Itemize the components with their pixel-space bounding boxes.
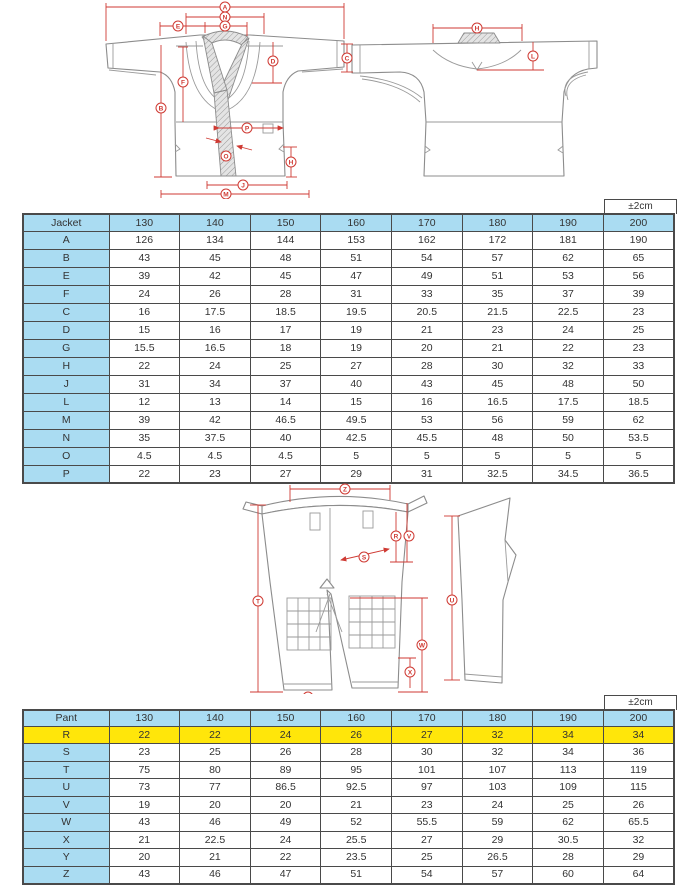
value-cell: 32	[603, 831, 674, 849]
value-cell: 23	[180, 465, 251, 483]
value-cell: 23	[392, 796, 463, 814]
dimension-marker: J	[238, 180, 248, 190]
value-cell: 31	[321, 285, 392, 303]
header-row: Jacket130140150160170180190200	[23, 214, 674, 231]
measure-label-cell: X	[23, 831, 109, 849]
value-cell: 48	[462, 429, 533, 447]
value-cell: 27	[392, 726, 463, 744]
value-cell: 42.5	[321, 429, 392, 447]
value-cell: 107	[462, 761, 533, 779]
size-column-header: 200	[603, 710, 674, 726]
table-title-cell: Pant	[23, 710, 109, 726]
table-row: R2222242627323434	[23, 726, 674, 744]
value-cell: 39	[109, 267, 180, 285]
table-row: S2325262830323436	[23, 744, 674, 762]
header-row: Pant130140150160170180190200	[23, 710, 674, 726]
value-cell: 60	[533, 866, 604, 884]
value-cell: 47	[321, 267, 392, 285]
value-cell: 19	[321, 321, 392, 339]
dimension-marker: Z	[340, 484, 350, 494]
measure-label-cell: B	[23, 249, 109, 267]
value-cell: 77	[180, 779, 251, 797]
dimension-marker: E	[173, 21, 183, 31]
table-row: O4.54.54.555555	[23, 447, 674, 465]
value-cell: 57	[462, 249, 533, 267]
value-cell: 24	[533, 321, 604, 339]
value-cell: 190	[603, 231, 674, 249]
measure-label-cell: T	[23, 761, 109, 779]
jacket-size-table: Jacket130140150160170180190200A126134144…	[22, 213, 675, 484]
table-row: C1617.518.519.520.521.522.523	[23, 303, 674, 321]
table-row: M394246.549.553565962	[23, 411, 674, 429]
value-cell: 49	[250, 814, 321, 832]
svg-text:T: T	[256, 598, 260, 605]
value-cell: 49.5	[321, 411, 392, 429]
dimension-marker: P	[242, 123, 252, 133]
value-cell: 40	[321, 375, 392, 393]
dimension-marker: C	[342, 53, 352, 63]
size-column-header: 190	[533, 710, 604, 726]
svg-text:O: O	[223, 153, 228, 160]
value-cell: 21	[180, 849, 251, 867]
table-row: W4346495255.5596265.5	[23, 814, 674, 832]
value-cell: 56	[603, 267, 674, 285]
table-row: T75808995101107113119	[23, 761, 674, 779]
dimension-marker: R	[391, 531, 401, 541]
value-cell: 16	[180, 321, 251, 339]
value-cell: 65.5	[603, 814, 674, 832]
size-column-header: 150	[250, 214, 321, 231]
value-cell: 21	[321, 796, 392, 814]
value-cell: 95	[321, 761, 392, 779]
value-cell: 23	[603, 303, 674, 321]
value-cell: 37	[533, 285, 604, 303]
value-cell: 34	[533, 744, 604, 762]
value-cell: 26	[603, 796, 674, 814]
size-column-header: 160	[321, 710, 392, 726]
measure-label-cell: C	[23, 303, 109, 321]
value-cell: 45	[180, 249, 251, 267]
value-cell: 21.5	[462, 303, 533, 321]
value-cell: 36.5	[603, 465, 674, 483]
value-cell: 37	[250, 375, 321, 393]
dimension-marker: H	[472, 23, 482, 33]
value-cell: 50	[603, 375, 674, 393]
value-cell: 24	[250, 726, 321, 744]
value-cell: 25.5	[321, 831, 392, 849]
value-cell: 92.5	[321, 779, 392, 797]
value-cell: 52	[321, 814, 392, 832]
dimension-marker: M	[221, 189, 231, 199]
value-cell: 32	[533, 357, 604, 375]
value-cell: 32.5	[462, 465, 533, 483]
value-cell: 23	[109, 744, 180, 762]
pants-diagram: Z R V S T W X Y	[0, 482, 679, 694]
value-cell: 53.5	[603, 429, 674, 447]
value-cell: 22	[109, 726, 180, 744]
value-cell: 48	[250, 249, 321, 267]
svg-text:R: R	[394, 533, 399, 540]
svg-text:B: B	[159, 105, 164, 112]
table-row: A126134144153162172181190	[23, 231, 674, 249]
value-cell: 35	[462, 285, 533, 303]
value-cell: 45.5	[392, 429, 463, 447]
table-row: L121314151616.517.518.5	[23, 393, 674, 411]
pants-front-drawing: Z R V S T W X Y	[243, 484, 428, 694]
pant-size-table: Pant130140150160170180190200R22222426273…	[22, 709, 675, 885]
value-cell: 16	[109, 303, 180, 321]
dimension-marker: S	[359, 552, 369, 562]
value-cell: 39	[109, 411, 180, 429]
table-row: J3134374043454850	[23, 375, 674, 393]
table-row: B4345485154576265	[23, 249, 674, 267]
svg-text:U: U	[450, 597, 455, 604]
svg-text:W: W	[419, 642, 426, 649]
value-cell: 109	[533, 779, 604, 797]
value-cell: 26.5	[462, 849, 533, 867]
value-cell: 5	[321, 447, 392, 465]
value-cell: 39	[603, 285, 674, 303]
value-cell: 29	[603, 849, 674, 867]
value-cell: 22.5	[180, 831, 251, 849]
value-cell: 34	[533, 726, 604, 744]
value-cell: 62	[603, 411, 674, 429]
size-column-header: 160	[321, 214, 392, 231]
value-cell: 33	[392, 285, 463, 303]
value-cell: 15.5	[109, 339, 180, 357]
value-cell: 28	[321, 744, 392, 762]
value-cell: 21	[109, 831, 180, 849]
svg-text:H: H	[475, 25, 480, 32]
value-cell: 65	[603, 249, 674, 267]
dimension-marker: F	[178, 77, 188, 87]
value-cell: 5	[603, 447, 674, 465]
size-column-header: 170	[392, 710, 463, 726]
table-row: N3537.54042.545.5485053.5	[23, 429, 674, 447]
dimension-marker: L	[528, 51, 538, 61]
svg-text:M: M	[223, 191, 228, 198]
value-cell: 54	[392, 249, 463, 267]
value-cell: 31	[109, 375, 180, 393]
value-cell: 172	[462, 231, 533, 249]
measure-label-cell: E	[23, 267, 109, 285]
dimension-marker: U	[447, 595, 457, 605]
value-cell: 26	[321, 726, 392, 744]
svg-text:P: P	[245, 125, 250, 132]
value-cell: 43	[109, 249, 180, 267]
value-cell: 53	[392, 411, 463, 429]
size-column-header: 170	[392, 214, 463, 231]
measure-label-cell: G	[23, 339, 109, 357]
size-column-header: 180	[462, 214, 533, 231]
value-cell: 53	[533, 267, 604, 285]
tolerance-label: ±2cm	[604, 199, 677, 214]
value-cell: 64	[603, 866, 674, 884]
value-cell: 54	[392, 866, 463, 884]
value-cell: 26	[180, 285, 251, 303]
table-row: X2122.52425.5272930.532	[23, 831, 674, 849]
value-cell: 80	[180, 761, 251, 779]
measure-label-cell: Y	[23, 849, 109, 867]
value-cell: 126	[109, 231, 180, 249]
size-column-header: 140	[180, 710, 251, 726]
table-title-cell: Jacket	[23, 214, 109, 231]
dimension-marker: H	[286, 157, 296, 167]
value-cell: 27	[250, 465, 321, 483]
value-cell: 35	[109, 429, 180, 447]
value-cell: 40	[250, 429, 321, 447]
value-cell: 119	[603, 761, 674, 779]
value-cell: 22	[250, 849, 321, 867]
jacket-diagram: A N E G D F B P O H J M	[0, 0, 679, 199]
size-column-header: 150	[250, 710, 321, 726]
value-cell: 22.5	[533, 303, 604, 321]
value-cell: 27	[321, 357, 392, 375]
value-cell: 36	[603, 744, 674, 762]
value-cell: 51	[321, 249, 392, 267]
value-cell: 32	[462, 726, 533, 744]
value-cell: 162	[392, 231, 463, 249]
value-cell: 29	[321, 465, 392, 483]
value-cell: 97	[392, 779, 463, 797]
value-cell: 22	[533, 339, 604, 357]
value-cell: 24	[180, 357, 251, 375]
value-cell: 34.5	[533, 465, 604, 483]
value-cell: 25	[533, 796, 604, 814]
value-cell: 73	[109, 779, 180, 797]
value-cell: 153	[321, 231, 392, 249]
table-row: D1516171921232425	[23, 321, 674, 339]
size-chart-page: A N E G D F B P O H J M	[0, 0, 679, 894]
measure-label-cell: S	[23, 744, 109, 762]
value-cell: 49	[392, 267, 463, 285]
value-cell: 62	[533, 249, 604, 267]
table-row: F2426283133353739	[23, 285, 674, 303]
table-row: Y20212223.52526.52829	[23, 849, 674, 867]
value-cell: 19	[321, 339, 392, 357]
value-cell: 22	[109, 465, 180, 483]
value-cell: 113	[533, 761, 604, 779]
value-cell: 134	[180, 231, 251, 249]
size-column-header: 200	[603, 214, 674, 231]
value-cell: 46.5	[250, 411, 321, 429]
value-cell: 46	[180, 814, 251, 832]
value-cell: 5	[462, 447, 533, 465]
table-row: H2224252728303233	[23, 357, 674, 375]
measure-label-cell: L	[23, 393, 109, 411]
dimension-marker: B	[156, 103, 166, 113]
value-cell: 25	[250, 357, 321, 375]
table-row: V1920202123242526	[23, 796, 674, 814]
value-cell: 30	[462, 357, 533, 375]
value-cell: 31	[392, 465, 463, 483]
svg-text:F: F	[181, 79, 185, 86]
value-cell: 101	[392, 761, 463, 779]
value-cell: 46	[180, 866, 251, 884]
value-cell: 59	[533, 411, 604, 429]
value-cell: 22	[109, 357, 180, 375]
value-cell: 4.5	[180, 447, 251, 465]
value-cell: 42	[180, 411, 251, 429]
svg-text:G: G	[222, 23, 227, 30]
svg-text:L: L	[531, 53, 535, 60]
svg-text:V: V	[407, 533, 412, 540]
dimension-marker: O	[221, 151, 231, 161]
dimension-marker: T	[253, 596, 263, 606]
dimension-marker: A	[220, 2, 230, 12]
value-cell: 20	[250, 796, 321, 814]
value-cell: 16.5	[180, 339, 251, 357]
value-cell: 55.5	[392, 814, 463, 832]
jacket-back-drawing: H C L	[341, 23, 597, 176]
value-cell: 19.5	[321, 303, 392, 321]
value-cell: 25	[180, 744, 251, 762]
value-cell: 37.5	[180, 429, 251, 447]
svg-text:J: J	[241, 182, 245, 189]
value-cell: 75	[109, 761, 180, 779]
value-cell: 16.5	[462, 393, 533, 411]
value-cell: 23.5	[321, 849, 392, 867]
measure-label-cell: R	[23, 726, 109, 744]
measure-label-cell: Z	[23, 866, 109, 884]
value-cell: 18	[250, 339, 321, 357]
value-cell: 4.5	[109, 447, 180, 465]
value-cell: 14	[250, 393, 321, 411]
measure-label-cell: F	[23, 285, 109, 303]
value-cell: 57	[462, 866, 533, 884]
value-cell: 50	[533, 429, 604, 447]
value-cell: 17.5	[180, 303, 251, 321]
measure-label-cell: N	[23, 429, 109, 447]
value-cell: 4.5	[250, 447, 321, 465]
table-row: G15.516.5181920212223	[23, 339, 674, 357]
value-cell: 20	[392, 339, 463, 357]
pants-side-drawing: U	[444, 498, 516, 683]
measure-label-cell: H	[23, 357, 109, 375]
measure-label-cell: U	[23, 779, 109, 797]
measure-label-cell: O	[23, 447, 109, 465]
svg-text:D: D	[271, 58, 276, 65]
dimension-marker: D	[268, 56, 278, 66]
value-cell: 51	[462, 267, 533, 285]
value-cell: 20	[180, 796, 251, 814]
value-cell: 17	[250, 321, 321, 339]
value-cell: 47	[250, 866, 321, 884]
dimension-marker: Y	[303, 692, 313, 694]
value-cell: 20	[109, 849, 180, 867]
dimension-marker: W	[417, 640, 427, 650]
svg-text:E: E	[176, 23, 181, 30]
size-column-header: 180	[462, 710, 533, 726]
value-cell: 62	[533, 814, 604, 832]
jacket-front-drawing: A N E G D F B P O H J M	[106, 2, 344, 199]
measure-label-cell: P	[23, 465, 109, 483]
value-cell: 32	[462, 744, 533, 762]
value-cell: 59	[462, 814, 533, 832]
value-cell: 30	[392, 744, 463, 762]
size-column-header: 190	[533, 214, 604, 231]
value-cell: 16	[392, 393, 463, 411]
value-cell: 28	[392, 357, 463, 375]
table-row: E3942454749515356	[23, 267, 674, 285]
value-cell: 26	[250, 744, 321, 762]
svg-text:H: H	[289, 159, 294, 166]
measure-label-cell: A	[23, 231, 109, 249]
value-cell: 33	[603, 357, 674, 375]
value-cell: 30.5	[533, 831, 604, 849]
value-cell: 21	[462, 339, 533, 357]
table-row: Z4346475154576064	[23, 866, 674, 884]
measure-label-cell: W	[23, 814, 109, 832]
value-cell: 24	[250, 831, 321, 849]
value-cell: 34	[180, 375, 251, 393]
value-cell: 181	[533, 231, 604, 249]
value-cell: 34	[603, 726, 674, 744]
value-cell: 43	[109, 866, 180, 884]
value-cell: 18.5	[603, 393, 674, 411]
value-cell: 13	[180, 393, 251, 411]
dimension-marker: V	[404, 531, 414, 541]
size-column-header: 140	[180, 214, 251, 231]
value-cell: 5	[533, 447, 604, 465]
value-cell: 27	[392, 831, 463, 849]
table-row: P222327293132.534.536.5	[23, 465, 674, 483]
value-cell: 23	[603, 339, 674, 357]
measure-label-cell: J	[23, 375, 109, 393]
value-cell: 43	[392, 375, 463, 393]
measure-label-cell: D	[23, 321, 109, 339]
value-cell: 115	[603, 779, 674, 797]
value-cell: 48	[533, 375, 604, 393]
value-cell: 25	[392, 849, 463, 867]
value-cell: 12	[109, 393, 180, 411]
svg-text:S: S	[362, 554, 367, 561]
value-cell: 24	[462, 796, 533, 814]
value-cell: 18.5	[250, 303, 321, 321]
value-cell: 56	[462, 411, 533, 429]
table-row: U737786.592.597103109115	[23, 779, 674, 797]
value-cell: 86.5	[250, 779, 321, 797]
size-column-header: 130	[109, 214, 180, 231]
dimension-marker: G	[220, 21, 230, 31]
value-cell: 51	[321, 866, 392, 884]
value-cell: 20.5	[392, 303, 463, 321]
value-cell: 5	[392, 447, 463, 465]
value-cell: 42	[180, 267, 251, 285]
value-cell: 15	[109, 321, 180, 339]
value-cell: 45	[250, 267, 321, 285]
dimension-marker: X	[405, 667, 415, 677]
value-cell: 29	[462, 831, 533, 849]
value-cell: 45	[462, 375, 533, 393]
measure-label-cell: V	[23, 796, 109, 814]
value-cell: 15	[321, 393, 392, 411]
value-cell: 22	[180, 726, 251, 744]
svg-text:X: X	[408, 669, 413, 676]
value-cell: 24	[109, 285, 180, 303]
value-cell: 23	[462, 321, 533, 339]
value-cell: 28	[250, 285, 321, 303]
value-cell: 17.5	[533, 393, 604, 411]
svg-text:Z: Z	[343, 486, 347, 493]
svg-text:N: N	[223, 14, 228, 21]
value-cell: 28	[533, 849, 604, 867]
measure-label-cell: M	[23, 411, 109, 429]
value-cell: 103	[462, 779, 533, 797]
svg-text:C: C	[345, 55, 350, 62]
value-cell: 21	[392, 321, 463, 339]
tolerance-label: ±2cm	[604, 695, 677, 710]
